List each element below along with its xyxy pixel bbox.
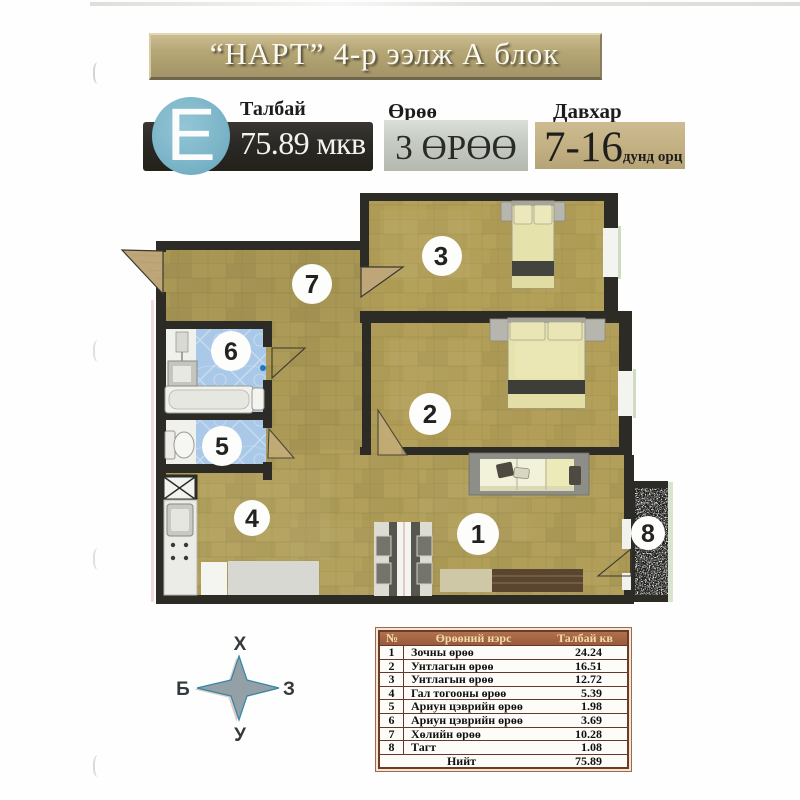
svg-text:Х: Х bbox=[234, 634, 247, 655]
svg-text:5: 5 bbox=[215, 433, 229, 461]
svg-text:6: 6 bbox=[224, 338, 238, 366]
svg-text:1: 1 bbox=[471, 519, 485, 549]
svg-text:Б: Б bbox=[176, 679, 190, 700]
svg-text:2: 2 bbox=[423, 399, 437, 429]
svg-text:У: У bbox=[234, 725, 246, 746]
svg-text:З: З bbox=[283, 679, 295, 700]
svg-text:7: 7 bbox=[305, 269, 319, 299]
svg-text:3: 3 bbox=[434, 241, 448, 271]
svg-text:8: 8 bbox=[641, 520, 655, 548]
svg-text:4: 4 bbox=[245, 505, 259, 533]
